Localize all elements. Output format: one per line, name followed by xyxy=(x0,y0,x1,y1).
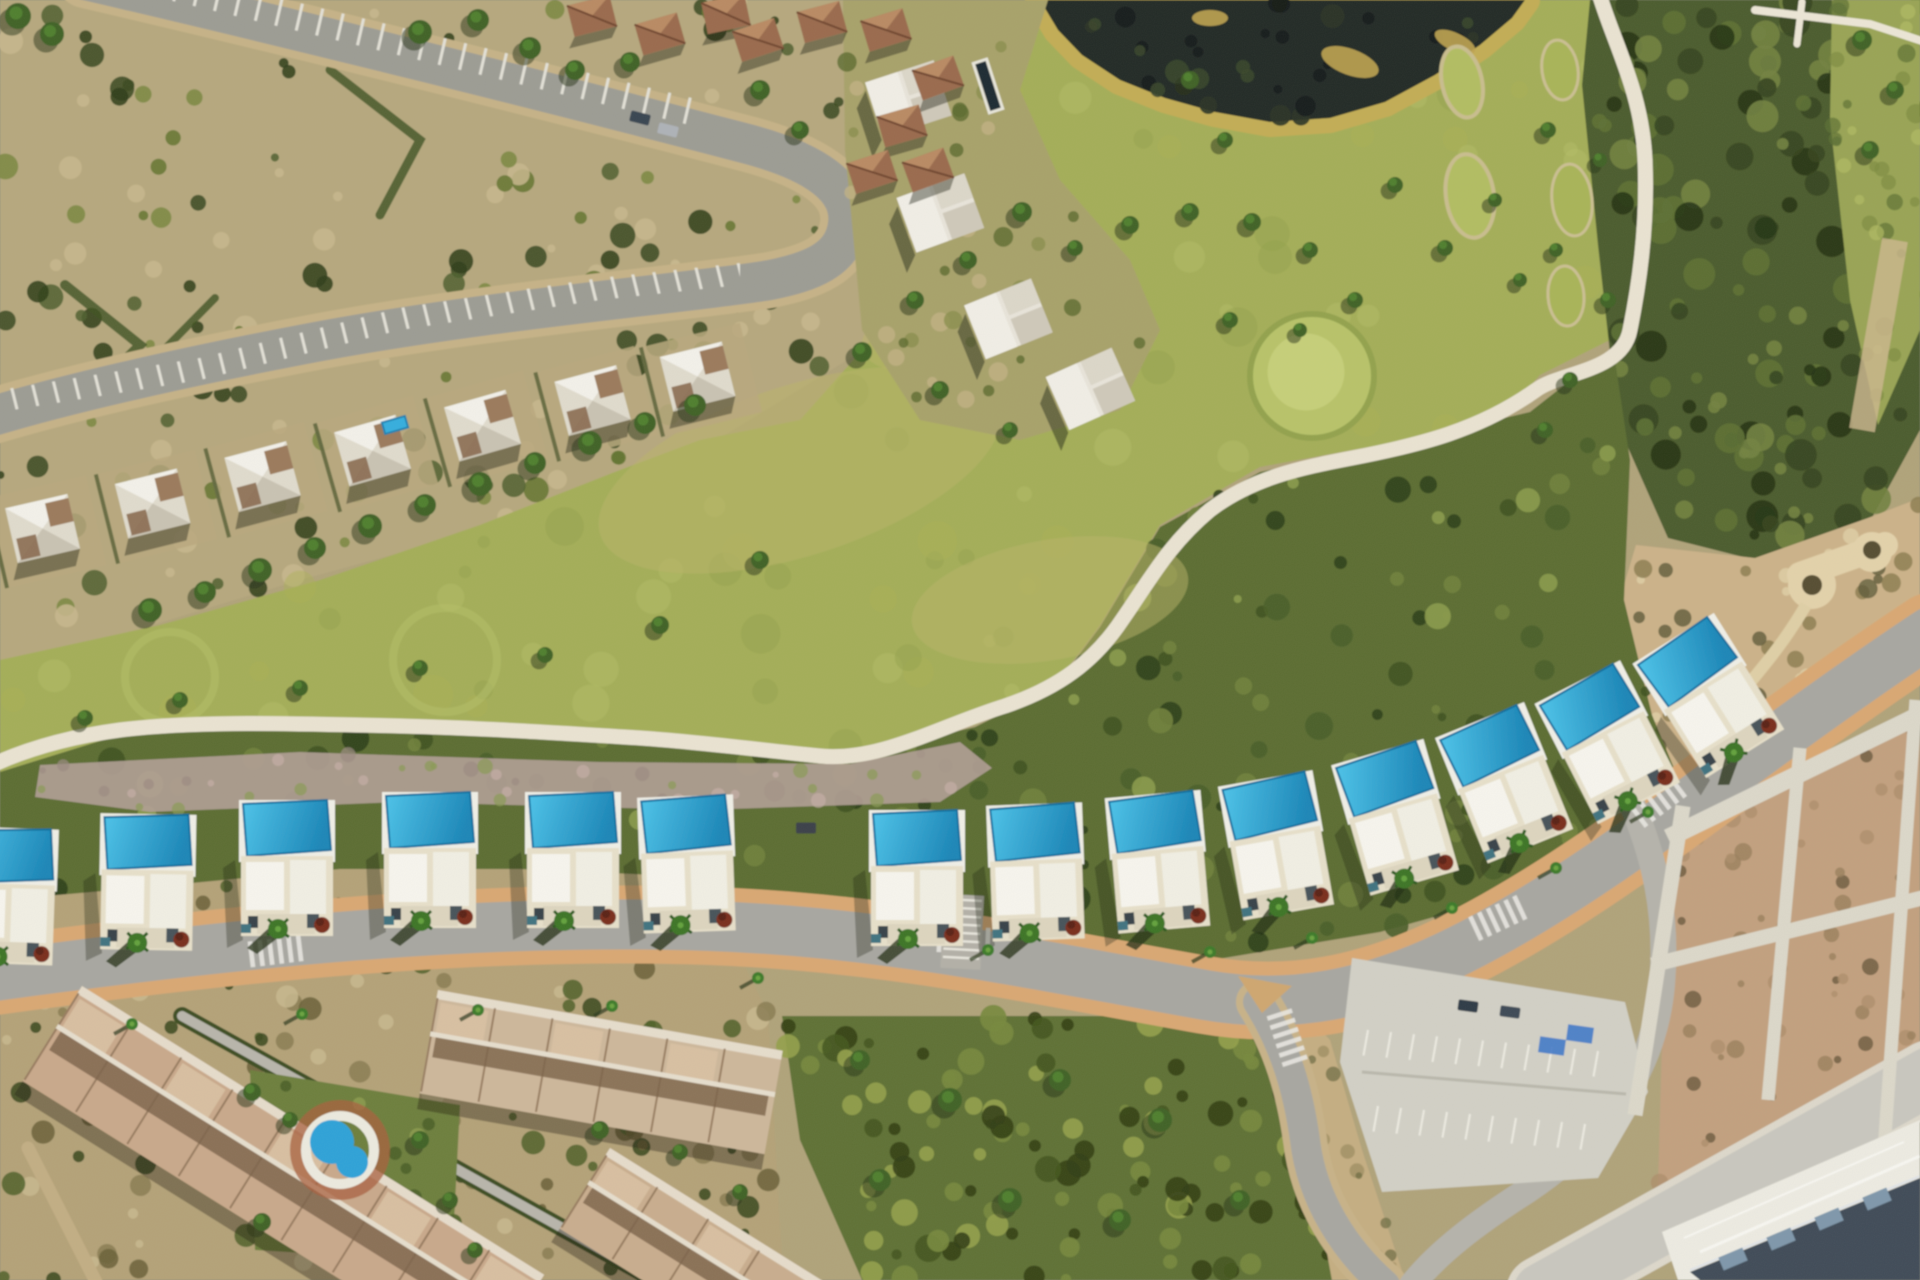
photo-grain-overlay xyxy=(0,0,1920,1280)
satellite-image xyxy=(0,0,1920,1280)
aerial-satellite-view xyxy=(0,0,1920,1280)
